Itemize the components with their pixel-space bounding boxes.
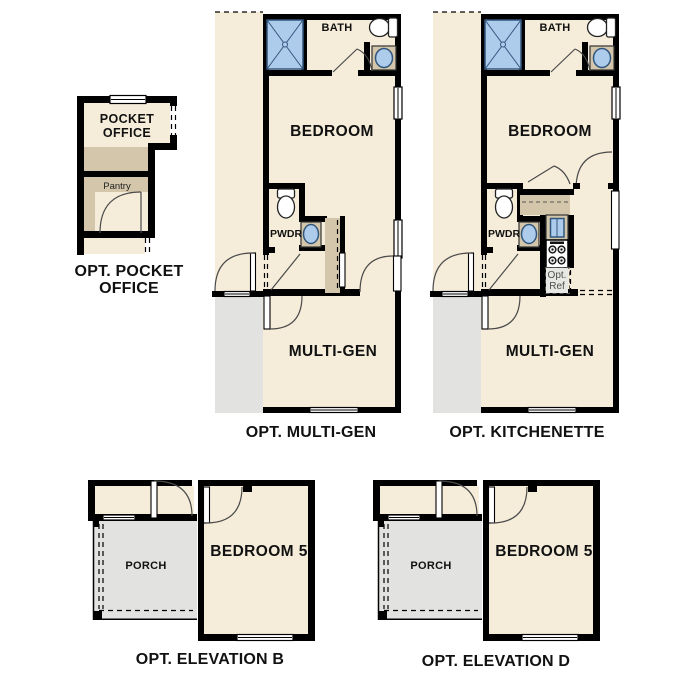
porch-label: PORCH: [125, 560, 166, 572]
pocket-office-caption-line2: OFFICE: [99, 280, 159, 297]
bedroom5-label: BEDROOM 5: [210, 543, 307, 560]
bath-label: BATH: [322, 22, 353, 34]
cooktop-icon: [546, 240, 568, 268]
bedroom-label: BEDROOM: [508, 123, 592, 140]
top-window: [110, 96, 146, 104]
pwdr-label: PWDR: [270, 228, 302, 240]
elevation-b-shell-use: [88, 480, 315, 641]
floor-plan-canvas: POCKET OFFICE Pantry OPT. POCKET OFFICE …: [0, 0, 687, 687]
bedroom-label: BEDROOM: [290, 123, 374, 140]
right-wall-window-lower: [394, 220, 402, 258]
opt-ref-label-line1: Opt.: [548, 270, 567, 281]
multi-gen-plan: BATH BEDROOM PWDR MULTI-GEN OPT. MULTI-G…: [212, 12, 402, 441]
porch-label: PORCH: [410, 560, 451, 572]
bath-label: BATH: [540, 22, 571, 34]
pocket-office-floor-extension: [80, 238, 145, 254]
elevation-d-shell-use: [373, 480, 600, 641]
opt-ref-label-line2: Ref: [549, 281, 565, 292]
opt-ref-space: Opt. Ref: [546, 268, 570, 294]
pocket-office-caption-line1: OPT. POCKET: [75, 263, 184, 280]
pocket-office-label-line2: OFFICE: [103, 126, 151, 140]
bedroom5-label: BEDROOM 5: [495, 543, 592, 560]
elevation-d-caption: OPT. ELEVATION D: [422, 653, 570, 670]
multi-gen-label: MULTI-GEN: [289, 343, 378, 360]
floor-plan-sheet: POCKET OFFICE Pantry OPT. POCKET OFFICE …: [0, 0, 687, 687]
desk-counter: [84, 147, 148, 173]
pocket-office-label-line1: POCKET: [100, 112, 155, 126]
pocket-office-plan: POCKET OFFICE Pantry OPT. POCKET OFFICE: [75, 96, 184, 298]
kitchenette-sink-icon: [546, 215, 568, 240]
elevation-b-caption: OPT. ELEVATION B: [136, 651, 284, 668]
linen-closet: [325, 216, 345, 296]
pantry-side-shelf: [84, 192, 95, 233]
elevation-d-plan: PORCH BEDROOM 5 OPT. ELEVATION D: [373, 480, 600, 670]
kitchenette-caption: OPT. KITCHENETTE: [449, 424, 604, 441]
right-wall-opening: [170, 106, 177, 135]
pantry-label: Pantry: [103, 181, 131, 192]
kitchenette-plan: Opt. Ref BATH BEDROOM PWDR MULTI-GEN OPT…: [430, 12, 620, 441]
bottom-opening-dashed: [146, 238, 150, 254]
pantry-floor: [95, 192, 141, 233]
multi-gen-caption: OPT. MULTI-GEN: [246, 424, 377, 441]
pwdr-label: PWDR: [488, 228, 520, 240]
elevation-b-plan: PORCH BEDROOM 5 OPT. ELEVATION B: [88, 480, 315, 668]
multi-gen-label: MULTI-GEN: [506, 343, 595, 360]
